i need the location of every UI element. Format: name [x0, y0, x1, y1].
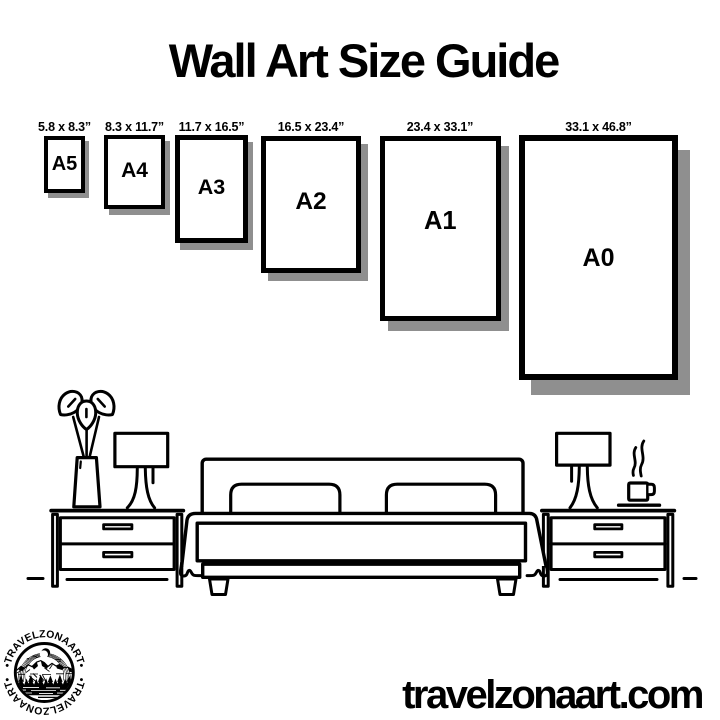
svg-text:•TRAVELZONAART•: •TRAVELZONAART•	[2, 676, 86, 715]
